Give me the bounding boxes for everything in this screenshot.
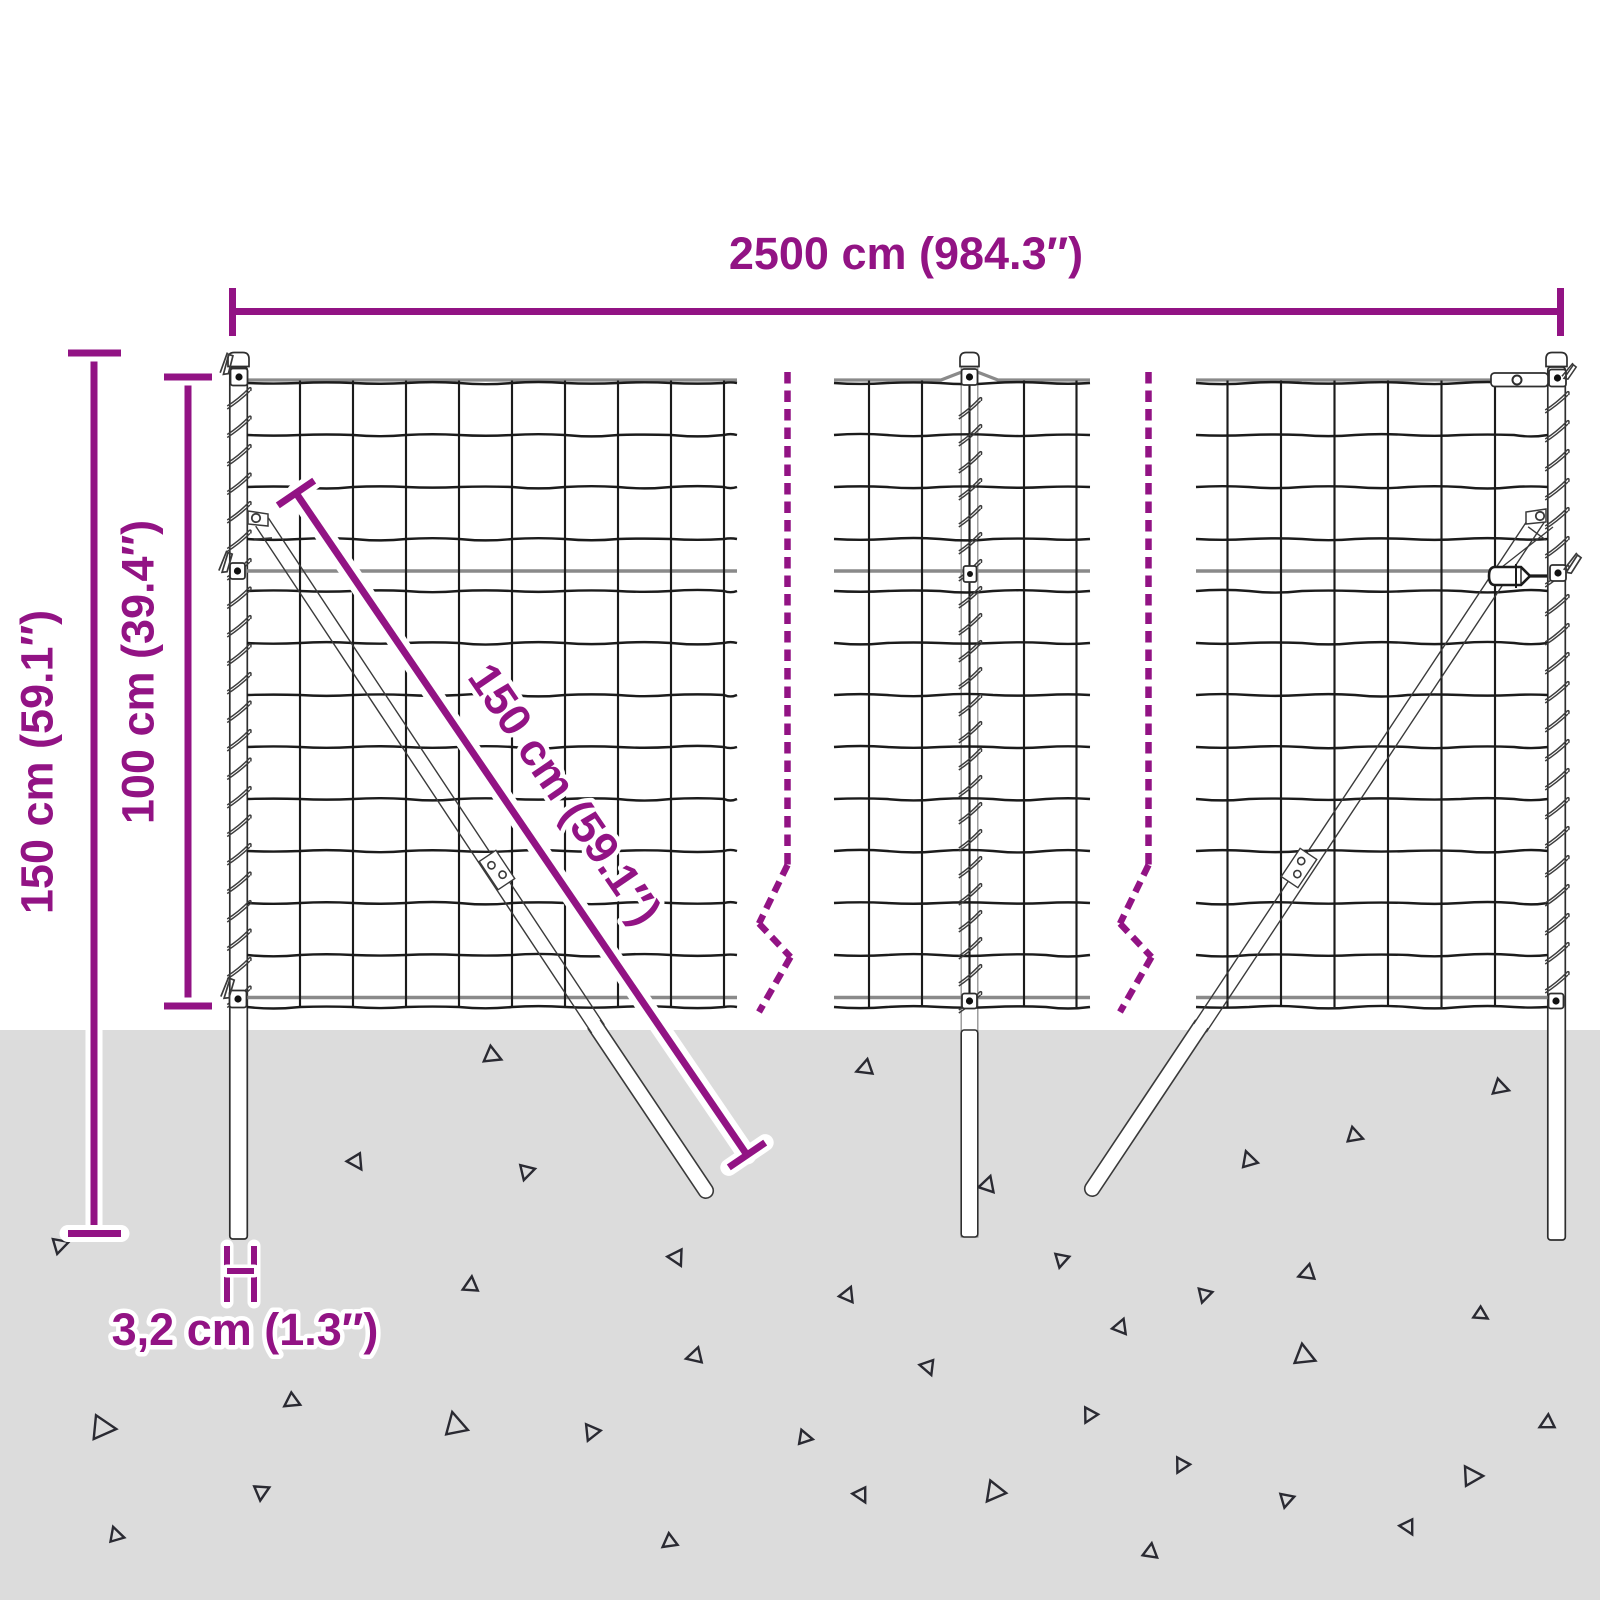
svg-text:150 cm (59.1″): 150 cm (59.1″) xyxy=(12,610,63,914)
svg-text:3,2 cm (1.3″): 3,2 cm (1.3″) xyxy=(112,1304,379,1355)
svg-text:2500 cm (984.3″): 2500 cm (984.3″) xyxy=(729,228,1083,279)
svg-text:100 cm (39.4″): 100 cm (39.4″) xyxy=(113,520,164,824)
